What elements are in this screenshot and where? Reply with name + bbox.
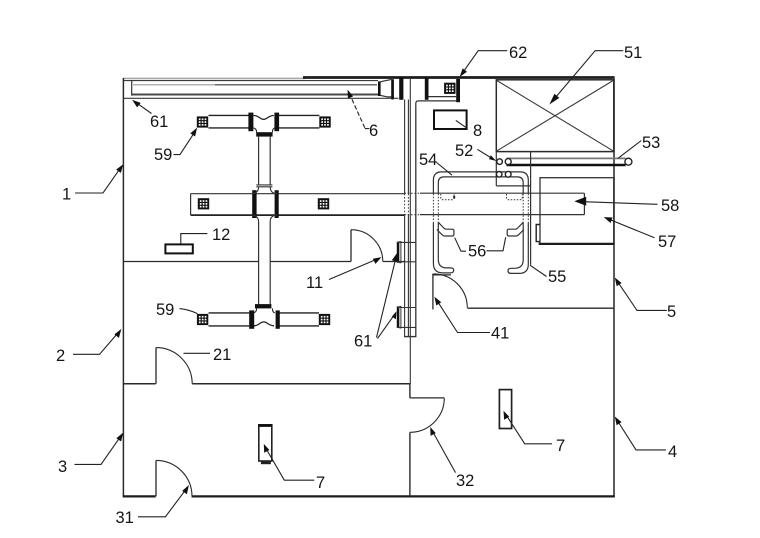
svg-text:59: 59	[154, 146, 172, 164]
svg-text:61: 61	[354, 333, 372, 351]
svg-text:54: 54	[419, 151, 437, 169]
svg-text:31: 31	[116, 509, 134, 527]
svg-text:11: 11	[306, 274, 323, 292]
svg-text:53: 53	[642, 134, 660, 152]
svg-text:7: 7	[316, 474, 325, 492]
svg-text:57: 57	[658, 233, 676, 251]
svg-text:7: 7	[556, 437, 565, 455]
svg-text:4: 4	[668, 443, 677, 461]
svg-text:58: 58	[661, 197, 679, 215]
svg-text:3: 3	[58, 458, 67, 476]
svg-text:55: 55	[548, 268, 566, 286]
svg-text:1: 1	[62, 186, 71, 204]
svg-text:41: 41	[491, 325, 509, 343]
svg-text:51: 51	[624, 44, 642, 62]
svg-text:8: 8	[473, 122, 482, 140]
svg-text:2: 2	[56, 347, 65, 365]
svg-text:12: 12	[212, 226, 230, 244]
svg-text:59: 59	[156, 301, 174, 319]
svg-text:56: 56	[468, 242, 486, 260]
svg-text:61: 61	[150, 113, 168, 131]
svg-text:52: 52	[455, 142, 473, 160]
svg-text:62: 62	[509, 44, 527, 62]
svg-text:32: 32	[456, 472, 474, 490]
svg-text:6: 6	[369, 122, 378, 140]
svg-text:5: 5	[667, 303, 676, 321]
svg-text:21: 21	[213, 346, 231, 364]
